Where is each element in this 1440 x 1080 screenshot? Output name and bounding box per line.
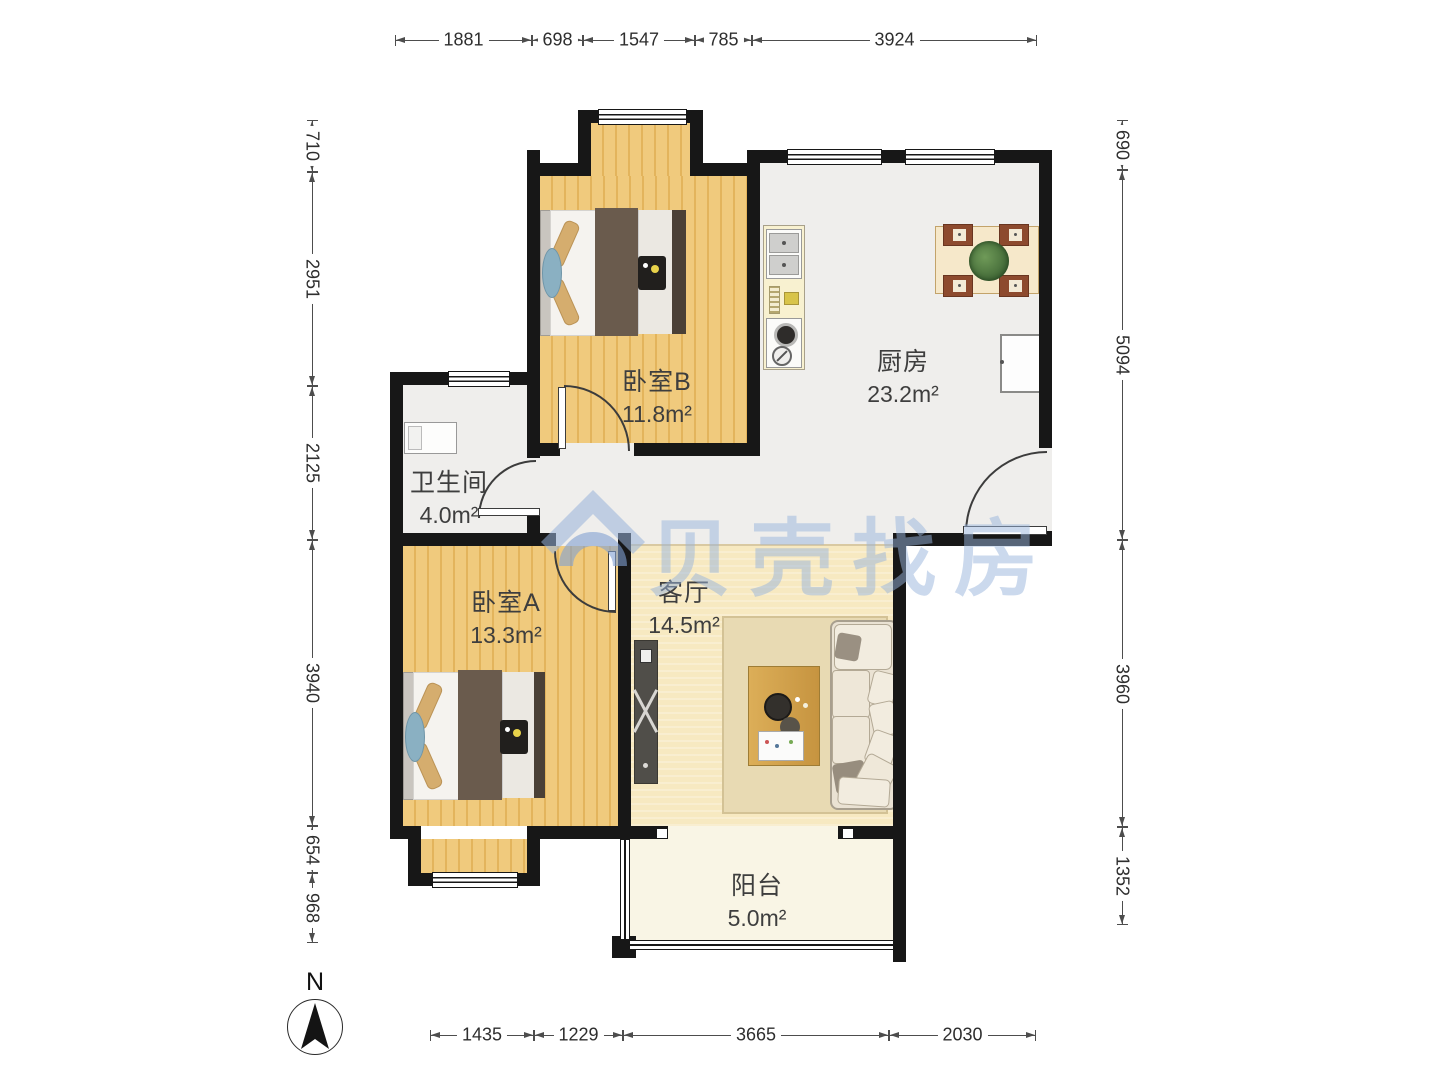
- dim-left-2: 2951: [305, 172, 319, 386]
- refrigerator: [1000, 334, 1043, 393]
- sink-basin: [769, 255, 799, 275]
- dim-arrow: [522, 37, 531, 43]
- compass: N: [283, 968, 347, 1068]
- tv-icon: [640, 649, 652, 663]
- tray-dot: [513, 729, 521, 737]
- dim-label: 968: [302, 888, 323, 928]
- chair-dot: [958, 284, 961, 287]
- table-tray: [758, 731, 804, 761]
- dim-label: 710: [302, 126, 323, 166]
- dim-arrow: [309, 387, 315, 396]
- dining-chair: [999, 275, 1029, 297]
- window-bedroom-a: [432, 872, 518, 888]
- dim-arrow: [1119, 817, 1125, 826]
- dim-arrow: [309, 530, 315, 539]
- opening-balcony: [668, 826, 838, 839]
- bathroom-vanity: [404, 422, 457, 454]
- vanity-basin: [408, 426, 422, 450]
- wall: [893, 533, 906, 962]
- compass-needle-icon: [288, 1000, 342, 1054]
- dim-top-1: 1881: [395, 33, 532, 47]
- dim-tick: [1117, 924, 1128, 925]
- room-name: 卫生间: [410, 463, 488, 499]
- dim-arrow: [1027, 37, 1036, 43]
- dim-arrow: [624, 1032, 633, 1038]
- balcony-railing: [629, 940, 894, 950]
- dim-right-1: 690: [1115, 120, 1129, 170]
- floor-divider-line: [631, 544, 893, 546]
- dim-arrow: [1119, 171, 1125, 180]
- dim-arrow: [753, 37, 762, 43]
- tray-dot: [643, 263, 648, 268]
- chair-dot: [958, 233, 961, 236]
- dim-label: 1229: [553, 1025, 603, 1046]
- drain-dot: [782, 263, 786, 267]
- wall: [390, 533, 556, 546]
- counter-item: [784, 292, 799, 305]
- burner-mark: [776, 350, 787, 361]
- burner: [772, 346, 792, 366]
- dining-chair: [943, 224, 973, 246]
- dim-label: 5094: [1112, 330, 1133, 380]
- floor-bedroom-b-bay: [591, 123, 690, 176]
- sofa-cushion: [832, 670, 870, 718]
- dim-label: 2030: [937, 1025, 987, 1046]
- room-area: 11.8m²: [622, 401, 692, 428]
- room-name: 客厅: [648, 573, 720, 609]
- wall: [618, 533, 631, 839]
- room-area: 14.5m²: [648, 612, 720, 639]
- dim-left-5: 654: [305, 826, 319, 873]
- wall: [527, 150, 540, 458]
- dim-bottom-4: 2030: [889, 1028, 1036, 1042]
- tray-dot: [775, 744, 779, 748]
- burner: [774, 323, 798, 347]
- dim-right-2: 5094: [1115, 170, 1129, 540]
- bed-blanket-dark: [595, 208, 638, 336]
- dim-left-1: 710: [305, 120, 319, 172]
- room-label-living: 客厅 14.5m²: [648, 573, 720, 639]
- bed-cushion: [405, 712, 425, 762]
- coffee-table: [748, 666, 820, 766]
- dim-label: 1435: [457, 1025, 507, 1046]
- dim-label: 690: [1112, 125, 1133, 165]
- dim-top-3: 1547: [583, 33, 695, 47]
- dim-top-5: 3924: [752, 33, 1037, 47]
- room-name: 阳台: [728, 866, 787, 902]
- chair-dot: [1014, 233, 1017, 236]
- dim-right-3: 3960: [1115, 540, 1129, 827]
- window-bedroom-b: [598, 109, 687, 125]
- dim-arrow: [1026, 1032, 1035, 1038]
- double-bed-a: [403, 670, 545, 800]
- dining-chair: [943, 275, 973, 297]
- stove: [766, 318, 802, 368]
- dim-arrow: [890, 1032, 899, 1038]
- sofa-pillow-gray: [834, 632, 862, 662]
- room-label-balcony: 阳台 5.0m²: [728, 866, 787, 932]
- bedroom-b-door-leaf: [558, 387, 566, 449]
- compass-circle: [287, 999, 343, 1055]
- tray-dot: [765, 740, 769, 744]
- dim-tick: [307, 942, 318, 943]
- dim-bottom-3: 3665: [623, 1028, 889, 1042]
- dim-top-2: 698: [532, 33, 583, 47]
- bed-blanket-dark: [458, 670, 502, 800]
- tray-dot: [505, 727, 510, 732]
- dim-label: 785: [703, 30, 743, 51]
- drain-dot: [782, 241, 786, 245]
- chair-seat: [953, 280, 966, 292]
- wall: [527, 443, 560, 456]
- dim-arrow: [685, 37, 694, 43]
- cabinet-dot: [643, 763, 648, 768]
- dish-rack: [769, 286, 780, 314]
- bed-tray: [638, 256, 666, 290]
- wall: [747, 150, 760, 456]
- dim-arrow: [1119, 541, 1125, 550]
- kitchen-sink: [766, 229, 802, 279]
- dim-arrow: [309, 816, 315, 825]
- room-label-bathroom: 卫生间 4.0m²: [410, 463, 488, 529]
- dim-left-4: 3940: [305, 540, 319, 826]
- table-dot: [803, 703, 808, 708]
- table-dot: [795, 697, 800, 702]
- tray-dot: [789, 740, 793, 744]
- dim-label: 1352: [1112, 851, 1133, 901]
- tv-cabinet: [634, 640, 658, 784]
- room-area: 5.0m²: [728, 905, 787, 932]
- dim-label: 654: [302, 829, 323, 869]
- dim-label: 3960: [1112, 658, 1133, 708]
- dim-arrow: [431, 1032, 440, 1038]
- dining-chair: [999, 224, 1029, 246]
- fridge-handle: [1000, 360, 1004, 364]
- room-area: 13.3m²: [470, 622, 542, 649]
- room-label-kitchen: 厨房 23.2m²: [867, 342, 939, 408]
- dim-arrow: [524, 1032, 533, 1038]
- floor-plan: 卧室B 11.8m² 厨房 23.2m² 卫生间 4.0m² 卧室A 13.3m…: [0, 0, 1440, 1080]
- dim-arrow: [1119, 828, 1125, 837]
- dim-arrow: [879, 1032, 888, 1038]
- dim-arrow: [396, 37, 405, 43]
- table-plant: [969, 241, 1009, 281]
- chair-seat: [1009, 280, 1022, 292]
- wall-cap: [656, 828, 668, 839]
- double-bed-b: [540, 208, 686, 336]
- dim-arrow: [584, 37, 593, 43]
- wall-cap: [842, 828, 854, 839]
- dim-label: 698: [537, 30, 577, 51]
- dim-top-4: 785: [695, 33, 752, 47]
- floor-bedroom-a-bay: [421, 839, 527, 873]
- dim-bottom-1: 1435: [430, 1028, 534, 1042]
- dim-left-3: 2125: [305, 386, 319, 540]
- sofa-pillow: [837, 776, 891, 808]
- chair-seat: [953, 229, 966, 241]
- wall: [390, 372, 403, 839]
- wall: [1039, 150, 1052, 448]
- room-name: 厨房: [867, 342, 939, 378]
- sink-basin: [769, 233, 799, 253]
- window-bathroom: [448, 371, 510, 387]
- bedroom-a-door-leaf: [608, 551, 616, 611]
- dim-arrow: [1119, 915, 1125, 924]
- bed-cushion: [542, 248, 562, 298]
- dim-label: 1547: [614, 30, 664, 51]
- dim-bottom-2: 1229: [534, 1028, 623, 1042]
- doorway-bedroom-a: [556, 533, 618, 546]
- entry-door-leaf: [963, 526, 1047, 535]
- dim-label: 1881: [438, 30, 488, 51]
- dim-label: 3924: [869, 30, 919, 51]
- dim-label: 2951: [302, 254, 323, 304]
- dim-label: 3665: [731, 1025, 781, 1046]
- balcony-side-window: [620, 839, 630, 940]
- dim-arrow: [535, 1032, 544, 1038]
- dim-arrow: [309, 376, 315, 385]
- wall: [527, 826, 631, 839]
- dim-arrow: [309, 874, 315, 883]
- room-area: 4.0m²: [410, 502, 488, 529]
- wall: [634, 443, 760, 456]
- dim-label: 3940: [302, 658, 323, 708]
- dim-arrow: [309, 173, 315, 182]
- sofa: [830, 620, 898, 810]
- dim-left-6: 968: [305, 873, 319, 943]
- room-area: 23.2m²: [867, 381, 939, 408]
- room-name: 卧室B: [622, 362, 692, 398]
- bed-tray: [500, 720, 528, 754]
- dim-tick: [1035, 1030, 1036, 1041]
- dim-tick: [1036, 35, 1037, 46]
- dim-right-4: 1352: [1115, 827, 1129, 925]
- dim-arrow: [309, 933, 315, 942]
- room-name: 卧室A: [470, 583, 542, 619]
- window-kitchen-1: [787, 149, 882, 165]
- dim-arrow: [613, 1032, 622, 1038]
- chair-seat: [1009, 229, 1022, 241]
- dining-table: [935, 226, 1039, 294]
- room-label-bedroom-a: 卧室A 13.3m²: [470, 583, 542, 649]
- window-kitchen-2: [905, 149, 995, 165]
- dim-arrow: [309, 541, 315, 550]
- tray-dot: [651, 265, 659, 273]
- chair-dot: [1014, 284, 1017, 287]
- compass-north-label: N: [283, 968, 347, 997]
- dim-label: 2125: [302, 438, 323, 488]
- bed-edge: [672, 210, 686, 334]
- room-label-bedroom-b: 卧室B 11.8m²: [622, 362, 692, 428]
- bed-edge: [534, 672, 545, 798]
- kitchen-counter: [763, 225, 805, 370]
- dim-arrow: [1119, 530, 1125, 539]
